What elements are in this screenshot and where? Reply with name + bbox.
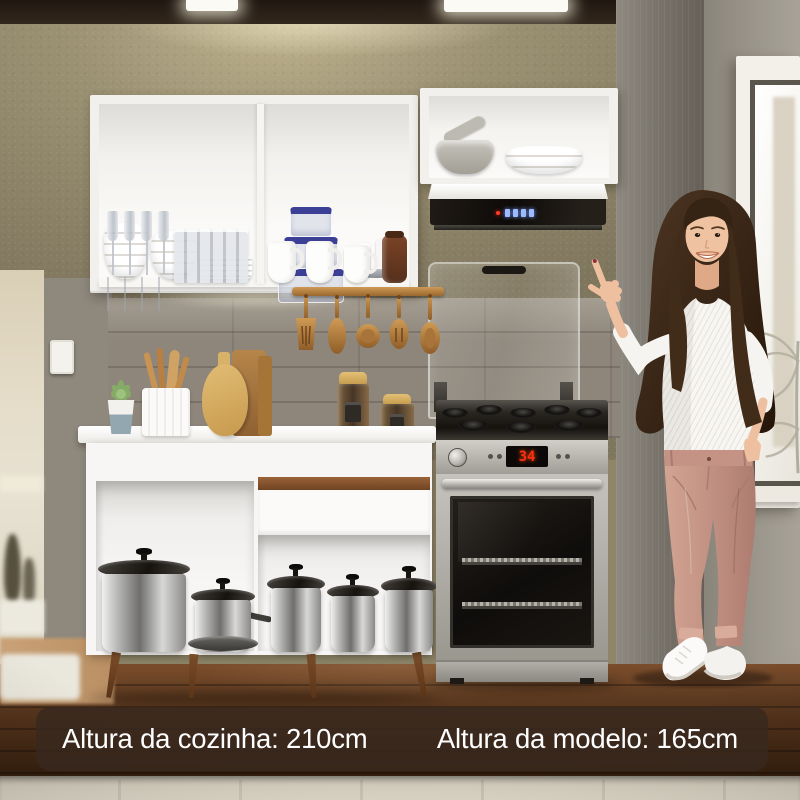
- stove-display: 34: [506, 446, 548, 467]
- model-eye: [695, 233, 700, 237]
- burner-grate: [510, 408, 536, 418]
- flute-glass: [107, 211, 118, 281]
- jar-cork-lid: [339, 372, 367, 384]
- burner-grate: [458, 420, 488, 431]
- kitchen-product-photo: 34: [0, 0, 800, 800]
- cabinet-divider: [257, 104, 264, 284]
- flute-glass: [141, 211, 152, 281]
- model-nail: [593, 259, 597, 263]
- ceramic-jar: [382, 235, 407, 283]
- caption-kitchen-height: Altura da cozinha: 210cm: [62, 723, 368, 755]
- canister-pot: [385, 590, 433, 652]
- hood-led-segment: [513, 209, 518, 217]
- shield-handle: [482, 266, 526, 274]
- light-switch: [50, 340, 74, 374]
- hood-led-segment: [521, 209, 526, 217]
- ceiling-light: [186, 0, 238, 11]
- drawer-handle: [258, 477, 430, 490]
- frying-pan: [188, 636, 258, 651]
- flute-glass: [158, 211, 169, 281]
- flute-glass: [124, 211, 135, 281]
- counter-shadow: [88, 692, 438, 704]
- jar-label: [345, 402, 361, 422]
- stove-display-value: 34: [519, 449, 536, 465]
- cutting-board-oval: [202, 364, 248, 436]
- tile-grout-lines: [0, 780, 800, 800]
- decor-vase: [4, 534, 21, 606]
- wall-glow: [60, 24, 580, 68]
- model-eye: [715, 233, 720, 237]
- model-floor-shadow: [633, 669, 773, 687]
- burner-grate: [442, 408, 468, 418]
- model-cuff: [715, 625, 738, 638]
- stove-button: [497, 454, 502, 459]
- caption-model-height: Altura da modelo: 165cm: [437, 723, 738, 755]
- drawer: [258, 477, 430, 535]
- cutting-board-thin: [258, 356, 272, 436]
- canister-pot: [331, 596, 375, 652]
- stove-foot: [450, 678, 464, 684]
- model: [545, 188, 785, 692]
- stove-button: [488, 454, 493, 459]
- large-pot: [102, 574, 186, 652]
- room-shelf: [0, 476, 42, 492]
- adjacent-room: [0, 270, 44, 680]
- upper-cabinet-left: [90, 95, 418, 293]
- upper-cabinet-right: [420, 88, 618, 184]
- glass-container: [290, 207, 332, 237]
- champagne-flutes: [104, 211, 180, 283]
- burner-grate: [506, 422, 536, 433]
- white-mug: [268, 241, 296, 283]
- hanging-wooden-utensils: [292, 294, 444, 364]
- stove-knob: [448, 448, 467, 467]
- hood-led-segment: [505, 209, 510, 217]
- burner-grate: [476, 405, 502, 415]
- model-hand-in-pocket: [744, 438, 761, 462]
- glass-tumblers: [174, 229, 248, 283]
- model-pointing-hand: [591, 262, 622, 305]
- ceiling-light: [444, 0, 568, 12]
- hood-led-power: [496, 211, 500, 215]
- model-forearm: [611, 304, 623, 333]
- jar-cork-lid: [383, 394, 411, 404]
- white-mug: [306, 241, 334, 283]
- hood-led-segment: [529, 209, 534, 217]
- utensil-holder: [142, 388, 190, 436]
- room-cabinet: [0, 600, 44, 634]
- white-mug: [344, 245, 370, 283]
- canister-pot: [271, 588, 321, 652]
- ceramic-jar-lid: [385, 231, 404, 238]
- adjacent-room-rug: [0, 654, 80, 700]
- caption-overlay: Altura da cozinha: 210cm Altura da model…: [36, 707, 768, 771]
